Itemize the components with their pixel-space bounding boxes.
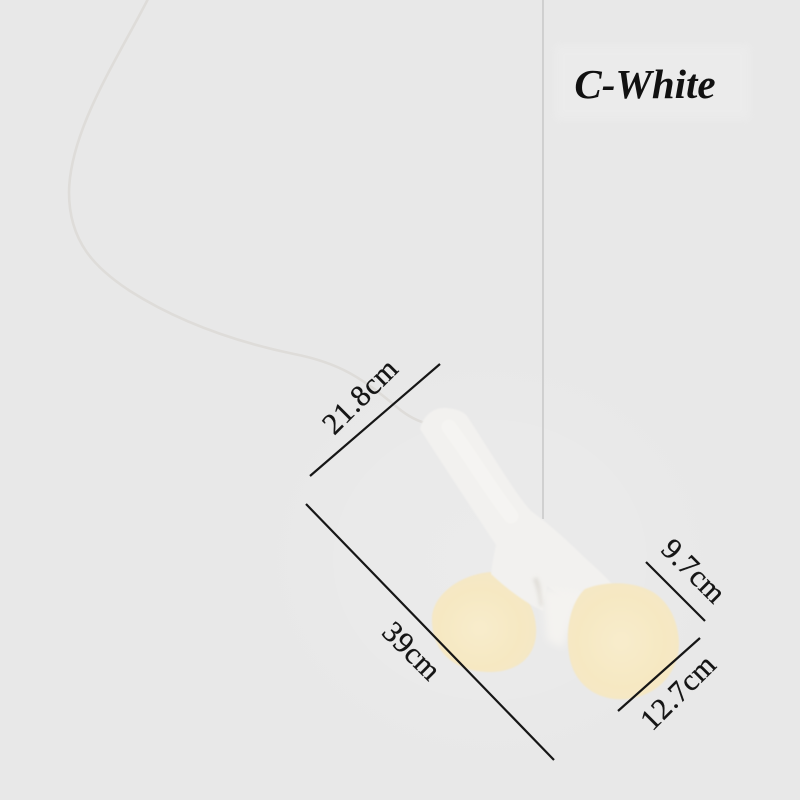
svg-text:C-White: C-White [574,61,715,107]
